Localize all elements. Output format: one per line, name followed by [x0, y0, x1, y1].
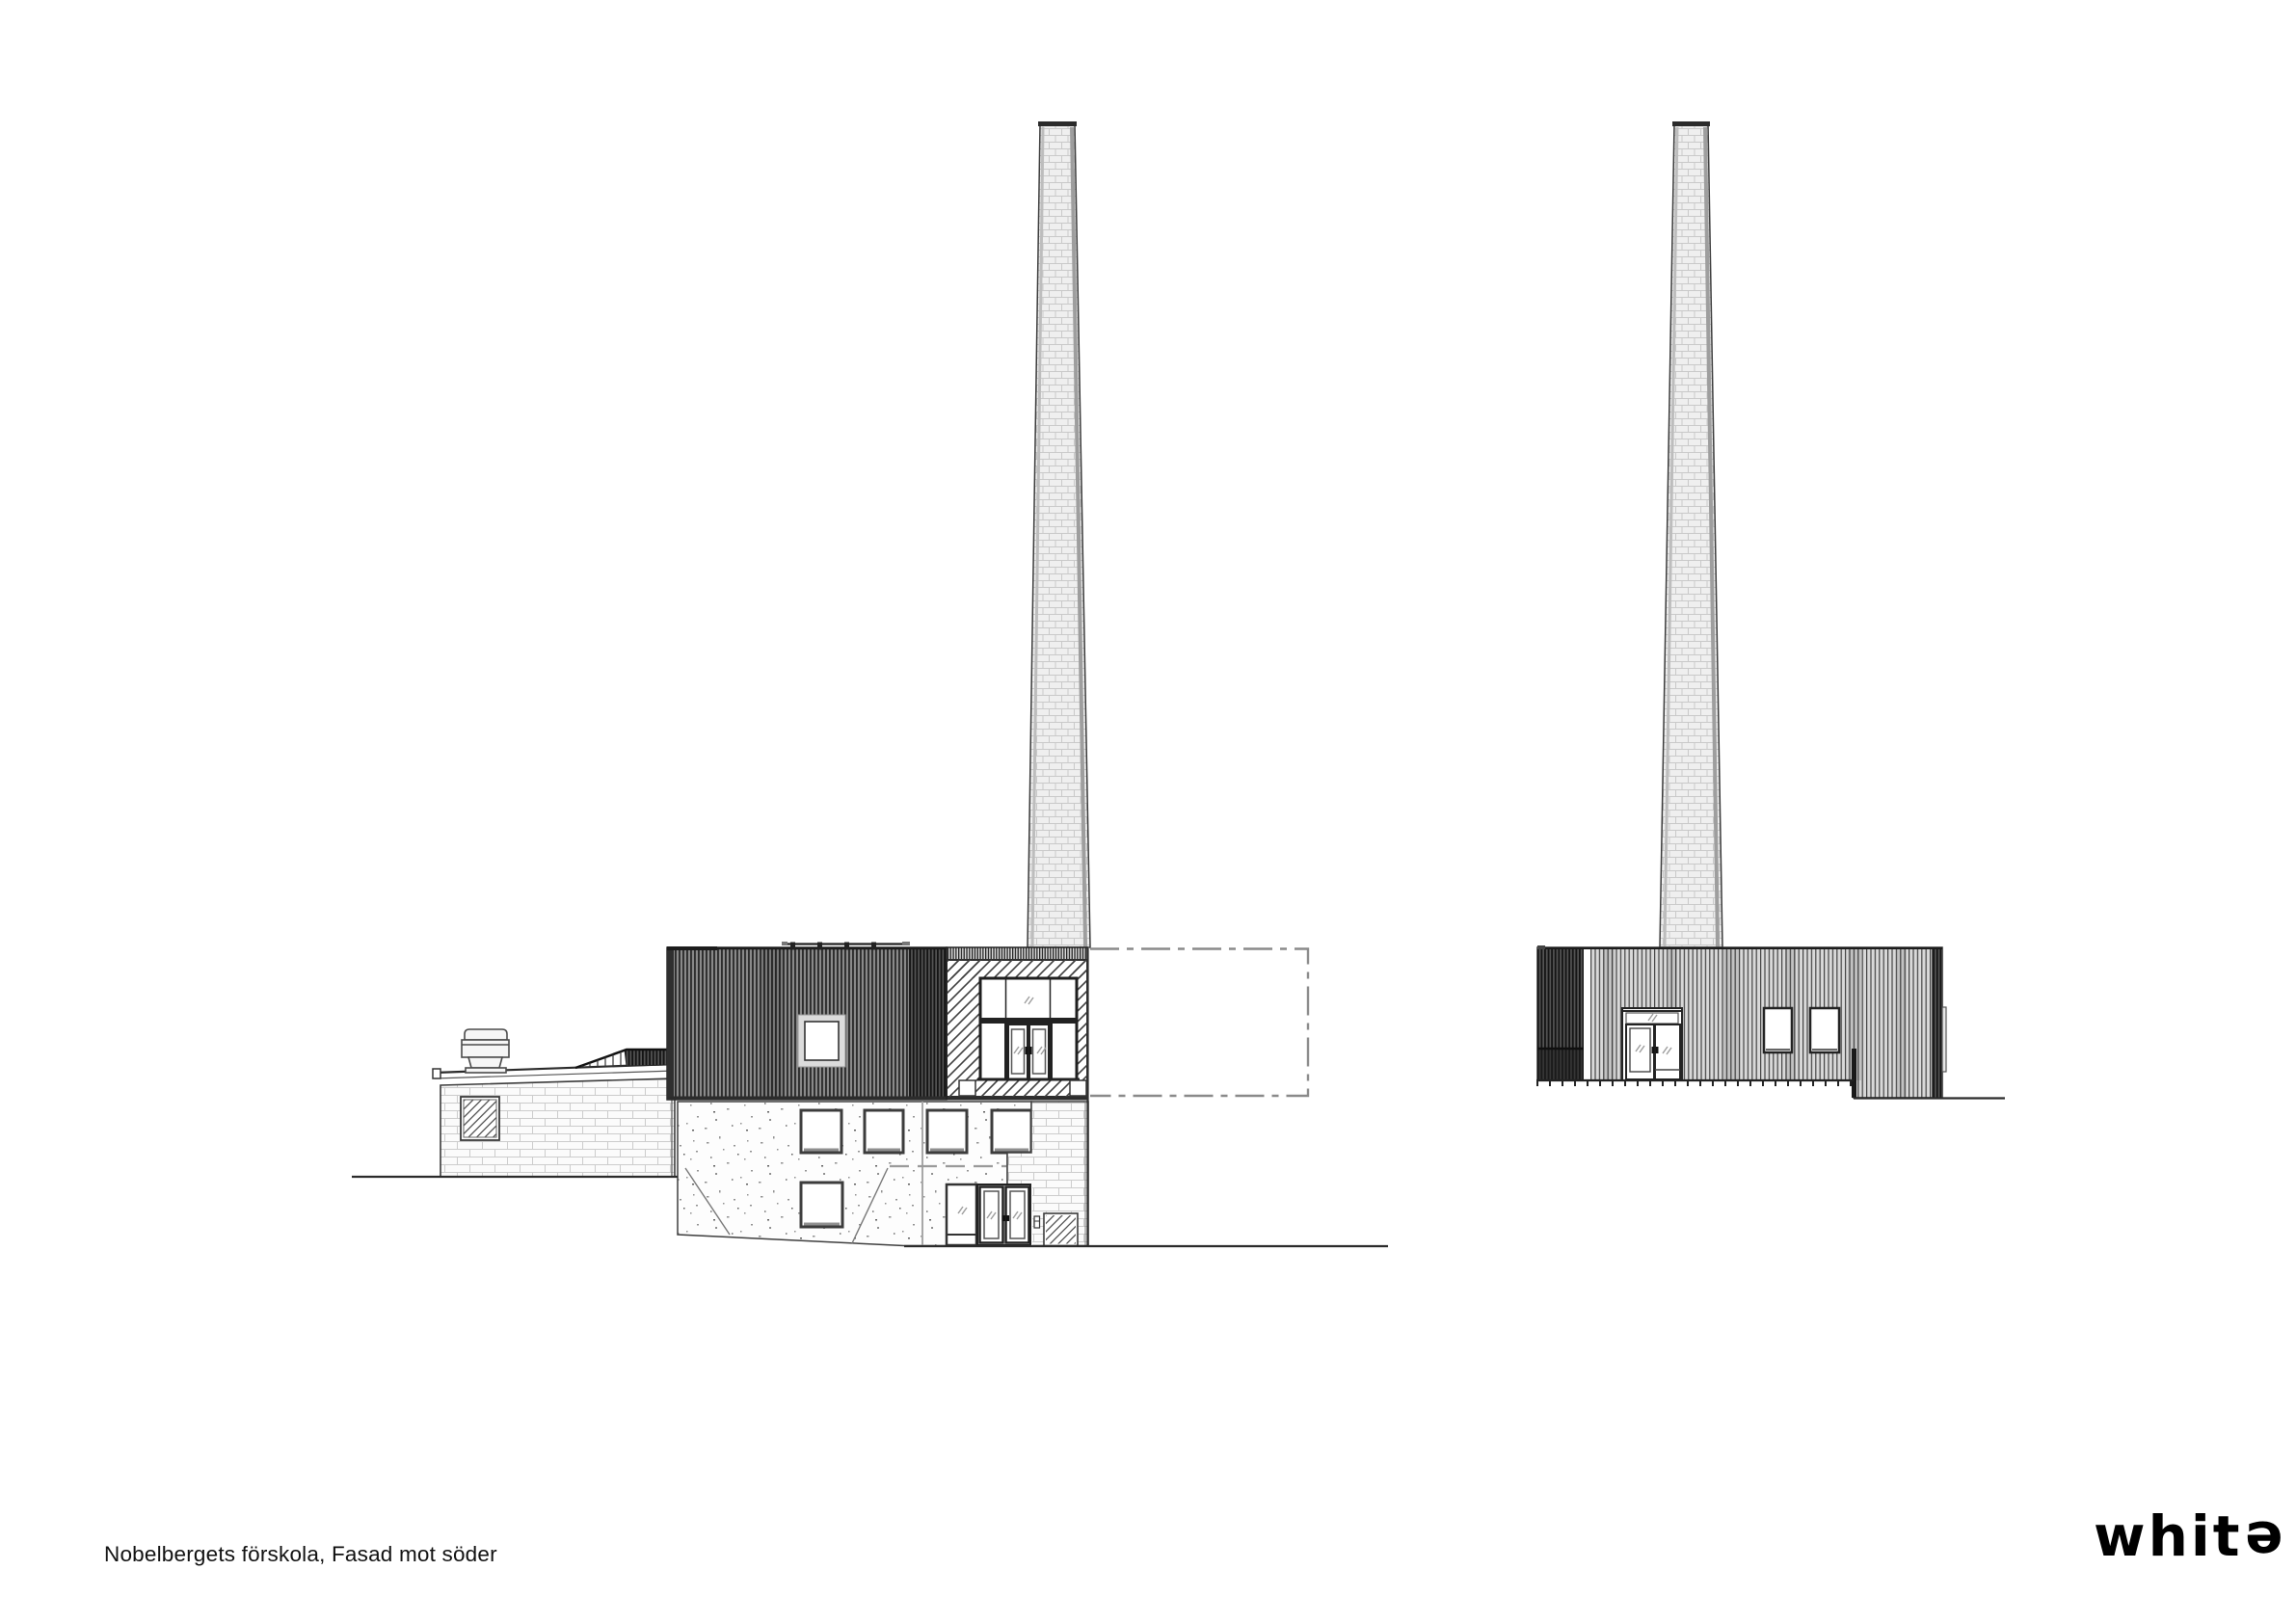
roof-vent	[462, 1029, 509, 1073]
drawing-caption: Nobelbergets förskola, Fasad mot söder	[104, 1542, 497, 1567]
chimney-right	[1660, 121, 1722, 947]
ground-entry	[946, 1184, 1032, 1246]
annex	[433, 1029, 675, 1177]
entry-cornice	[947, 947, 1087, 960]
elevation-drawing	[0, 0, 2296, 1623]
coping-end-cap	[433, 1069, 441, 1078]
logo-text: whit	[2094, 1503, 2242, 1569]
basement-window	[801, 1183, 842, 1227]
door-handle	[1656, 1047, 1659, 1053]
logo-flipped-e: e	[2242, 1508, 2283, 1574]
intercom-box	[1034, 1216, 1040, 1228]
drawing-sheet: { "sheet": { "background": "#ffffff", "c…	[0, 0, 2296, 1623]
door-handle	[1006, 1215, 1010, 1221]
white-arkitekter-logo: white	[2094, 1503, 2283, 1569]
entry-bay	[947, 947, 1087, 1100]
right-elevation	[1536, 121, 2005, 1099]
extension-outline	[1090, 949, 1308, 1097]
slat-facade	[1536, 945, 1946, 1098]
pier-hatch-panel	[1044, 1213, 1078, 1246]
ground-doors	[977, 1184, 1030, 1245]
door-handle	[1652, 1047, 1655, 1053]
entrance-door	[1622, 1008, 1682, 1080]
door-handle	[1002, 1215, 1006, 1221]
entry-support-foot	[959, 1080, 975, 1096]
porch-section	[1537, 947, 1584, 1080]
annex-hatch-panel	[461, 1097, 499, 1140]
entry-support-foot	[1070, 1080, 1086, 1096]
left-elevation	[352, 121, 1388, 1246]
door-handle	[1026, 1047, 1028, 1054]
chimney-left	[1028, 121, 1090, 947]
upper-window	[798, 1015, 845, 1067]
door-handle	[1029, 1047, 1032, 1054]
sidelight	[947, 1184, 976, 1245]
downpipe	[1942, 1007, 1946, 1072]
entry-glazing	[977, 978, 1080, 1079]
